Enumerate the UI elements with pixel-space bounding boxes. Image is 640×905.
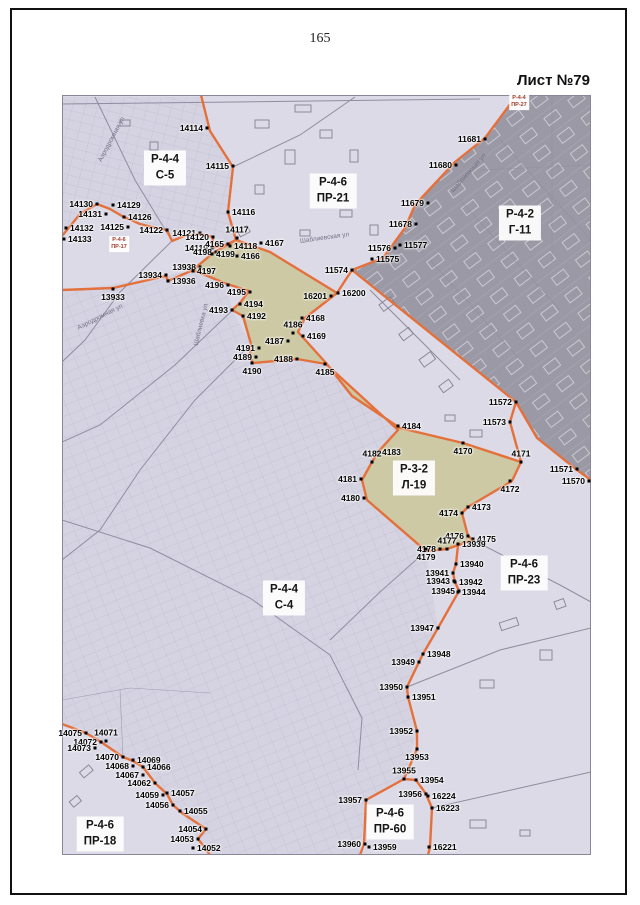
boundary-point-marker: [360, 478, 363, 481]
boundary-point-marker: [427, 202, 430, 205]
boundary-point-marker: [452, 572, 455, 575]
boundary-point-marker: [242, 315, 245, 318]
boundary-point-label: 16201: [303, 292, 327, 301]
boundary-point-marker: [211, 253, 214, 256]
boundary-point-label: 4188: [274, 355, 293, 364]
boundary-point-marker: [251, 362, 254, 365]
boundary-point-label: 4172: [501, 485, 520, 494]
boundary-point-marker: [455, 164, 458, 167]
boundary-point-label: 13944: [462, 588, 486, 597]
zone-label: Р-3-2Л-19: [393, 460, 435, 495]
boundary-point-marker: [100, 741, 103, 744]
boundary-point-marker: [324, 363, 327, 366]
zone-name: ПР-21: [317, 191, 350, 207]
boundary-point-marker: [85, 732, 88, 735]
boundary-point-label: 13945: [431, 587, 455, 596]
boundary-point-marker: [296, 358, 299, 361]
zone-label: Р-4-6ПР-18: [77, 816, 124, 851]
boundary-point-label: 4167: [265, 239, 284, 248]
boundary-point-label: 14129: [117, 201, 141, 210]
boundary-point-marker: [65, 227, 68, 230]
zone-name: ПР-27: [511, 102, 527, 109]
boundary-point-marker: [112, 204, 115, 207]
boundary-point-label: 14133: [68, 235, 92, 244]
zone-label: Р-4-4С-4: [263, 580, 305, 615]
boundary-point-label: 11571: [550, 465, 573, 474]
boundary-point-marker: [232, 165, 235, 168]
boundary-point-label: 13956: [398, 790, 422, 799]
boundary-point-label: 13943: [426, 577, 450, 586]
boundary-point-label: 11572: [489, 398, 512, 407]
boundary-point-marker: [192, 270, 195, 273]
boundary-point-label: 4173: [472, 503, 491, 512]
boundary-point-marker: [461, 512, 464, 515]
zone-code: Р-4-6: [84, 818, 117, 834]
boundary-point-marker: [105, 213, 108, 216]
sheet-label: Лист №79: [517, 72, 590, 89]
boundary-point-label: 4168: [306, 314, 325, 323]
boundary-point-marker: [105, 740, 108, 743]
boundary-point-marker: [172, 804, 175, 807]
boundary-point-marker: [302, 335, 305, 338]
boundary-point-marker: [260, 242, 263, 245]
zone-code: Р-4-6: [317, 175, 350, 191]
boundary-point-label: 14115: [206, 162, 229, 171]
boundary-point-marker: [365, 799, 368, 802]
boundary-point-marker: [455, 563, 458, 566]
boundary-point-label: 4181: [338, 475, 357, 484]
boundary-point-label: 14055: [184, 807, 208, 816]
boundary-point-label: 14066: [147, 763, 171, 772]
boundary-point-marker: [397, 425, 400, 428]
zone-label: Р-4-2Г-11: [499, 205, 541, 240]
boundary-point-marker: [368, 846, 371, 849]
boundary-point-label: 13959: [373, 843, 397, 852]
boundary-point-marker: [462, 442, 465, 445]
boundary-point-marker: [364, 843, 367, 846]
boundary-point-marker: [229, 245, 232, 248]
boundary-point-label: 14071: [94, 729, 118, 738]
boundary-point-label: 14118: [234, 242, 257, 251]
zone-name: ПР-18: [84, 834, 117, 850]
boundary-point-label: 13947: [410, 624, 434, 633]
boundary-point-marker: [165, 274, 168, 277]
boundary-point-label: 14059: [135, 791, 159, 800]
boundary-point-label: 4198: [193, 248, 212, 257]
boundary-point-marker: [167, 280, 170, 283]
boundary-point-marker: [371, 461, 374, 464]
boundary-point-label: 13957: [338, 796, 362, 805]
boundary-point-marker: [437, 627, 440, 630]
boundary-point-marker: [457, 543, 460, 546]
map: Аэродромная улАэродромная улШаблиевская …: [62, 95, 591, 855]
boundary-point-label: 4192: [247, 312, 266, 321]
boundary-point-marker: [166, 792, 169, 795]
boundary-point-label: 11678: [389, 220, 412, 229]
boundary-point-label: 4185: [316, 368, 335, 377]
zone-code: Р-4-4: [511, 95, 527, 102]
boundary-point-marker: [484, 138, 487, 141]
boundary-point-marker: [415, 779, 418, 782]
boundary-point-marker: [292, 332, 295, 335]
boundary-point-label: 11575: [376, 255, 399, 264]
boundary-point-label: 4199: [216, 250, 235, 259]
boundary-point-marker: [132, 765, 135, 768]
boundary-point-marker: [142, 766, 145, 769]
boundary-point-label: 4177: [438, 537, 457, 546]
zone-label: Р-4-6ПР-60: [367, 804, 414, 839]
document-page: { "page": { "number": "165", "sheet_labe…: [0, 0, 640, 905]
zone-code: Р-4-6: [508, 557, 541, 573]
boundary-point-marker: [371, 258, 374, 261]
boundary-point-marker: [509, 421, 512, 424]
boundary-point-marker: [418, 661, 421, 664]
boundary-point-label: 4189: [233, 353, 252, 362]
zone-code: Р-3-2: [400, 462, 428, 478]
boundary-point-label: 13950: [379, 683, 403, 692]
boundary-point-label: 4183: [382, 448, 401, 457]
boundary-point-label: 4187: [265, 337, 284, 346]
boundary-point-label: 14056: [145, 801, 169, 810]
zone-code: Р-4-2: [506, 207, 534, 223]
boundary-point-label: 16221: [433, 843, 457, 852]
boundary-point-label: 13942: [459, 578, 483, 587]
boundary-point-label: 13948: [427, 650, 451, 659]
boundary-point-marker: [406, 686, 409, 689]
boundary-point-marker: [576, 468, 579, 471]
boundary-point-label: 14053: [170, 835, 194, 844]
boundary-point-marker: [227, 211, 230, 214]
boundary-point-marker: [416, 730, 419, 733]
boundary-point-label: 4169: [307, 332, 326, 341]
zone-label: Р-4-4С-5: [144, 150, 186, 185]
boundary-point-label: 11680: [429, 161, 452, 170]
boundary-point-label: 4180: [341, 494, 360, 503]
boundary-point-marker: [427, 795, 430, 798]
boundary-point-marker: [236, 255, 239, 258]
boundary-point-label: 13949: [391, 658, 415, 667]
boundary-point-marker: [206, 127, 209, 130]
boundary-point-label: 11679: [401, 199, 424, 208]
boundary-point-label: 14054: [178, 825, 202, 834]
boundary-point-marker: [154, 782, 157, 785]
boundary-point-marker: [205, 828, 208, 831]
boundary-point-label: 4196: [205, 281, 224, 290]
boundary-point-marker: [162, 794, 165, 797]
boundary-point-label: 13955: [392, 767, 416, 776]
boundary-point-marker: [363, 497, 366, 500]
boundary-point-label: 4194: [244, 300, 263, 309]
boundary-point-label: 13953: [405, 753, 429, 762]
boundary-point-marker: [509, 480, 512, 483]
boundary-point-label: 16200: [342, 289, 366, 298]
boundary-point-marker: [239, 303, 242, 306]
mini-zone-label: Р-4-6ПР-17: [109, 236, 129, 252]
zone-name: С-4: [270, 598, 298, 614]
boundary-point-label: 4184: [402, 422, 421, 431]
boundary-point-label: 13934: [138, 271, 162, 280]
boundary-point-marker: [515, 401, 518, 404]
boundary-point-label: 11573: [483, 418, 506, 427]
boundary-point-label: 13933: [101, 293, 125, 302]
boundary-point-marker: [166, 229, 169, 232]
zone-code: Р-4-4: [151, 152, 179, 168]
boundary-point-marker: [287, 340, 290, 343]
zone-name: ПР-60: [374, 822, 407, 838]
boundary-point-marker: [258, 347, 261, 350]
boundary-point-label: 14132: [70, 224, 94, 233]
boundary-point-label: 14131: [78, 210, 102, 219]
boundary-point-marker: [330, 295, 333, 298]
zone-name: ПР-23: [508, 573, 541, 589]
boundary-point-label: 11576: [368, 244, 391, 253]
boundary-point-marker: [142, 774, 145, 777]
boundary-point-marker: [337, 292, 340, 295]
boundary-point-label: 13940: [460, 560, 484, 569]
boundary-point-label: 4170: [454, 447, 473, 456]
boundary-point-label: 4190: [243, 367, 262, 376]
boundary-point-label: 11577: [404, 241, 427, 250]
boundary-point-marker: [96, 203, 99, 206]
zone-code: Р-4-4: [270, 582, 298, 598]
boundary-point-marker: [446, 548, 449, 551]
boundary-point-marker: [520, 461, 523, 464]
boundary-point-marker: [192, 847, 195, 850]
boundary-point-label: 11570: [562, 477, 585, 486]
boundary-point-marker: [231, 309, 234, 312]
boundary-point-marker: [127, 226, 130, 229]
boundary-point-label: 4195: [227, 288, 246, 297]
boundary-point-label: 14130: [69, 200, 93, 209]
zone-name: ПР-17: [111, 244, 127, 251]
boundary-point-marker: [132, 759, 135, 762]
boundary-point-label: 14114: [180, 124, 203, 133]
boundary-point-marker: [422, 653, 425, 656]
boundary-point-marker: [415, 223, 418, 226]
boundary-point-marker: [457, 591, 460, 594]
boundary-point-marker: [255, 356, 258, 359]
boundary-point-label: 14062: [127, 779, 151, 788]
zone-code: Р-4-6: [374, 806, 407, 822]
boundary-point-marker: [394, 247, 397, 250]
zone-name: Г-11: [506, 223, 534, 239]
boundary-point-marker: [431, 807, 434, 810]
zone-code: Р-4-6: [111, 237, 127, 244]
boundary-point-label: 13954: [420, 776, 444, 785]
boundary-point-label: 4186: [284, 321, 303, 330]
boundary-point-label: 14116: [232, 208, 255, 217]
boundary-point-marker: [407, 696, 410, 699]
boundary-point-label: 4197: [197, 267, 216, 276]
boundary-point-marker: [403, 778, 406, 781]
boundary-point-label: 16223: [436, 804, 460, 813]
boundary-point-marker: [236, 237, 239, 240]
boundary-point-marker: [351, 269, 354, 272]
boundary-point-label: 13960: [337, 840, 361, 849]
boundary-point-marker: [249, 291, 252, 294]
boundary-point-marker: [123, 216, 126, 219]
boundary-point-marker: [439, 548, 442, 551]
boundary-point-marker: [112, 288, 115, 291]
boundary-point-marker: [416, 748, 419, 751]
boundary-point-label: 4182: [363, 450, 382, 459]
boundary-point-marker: [197, 838, 200, 841]
boundary-point-label: 14125: [100, 223, 124, 232]
boundary-point-label: 14057: [171, 789, 195, 798]
boundary-point-label: 11574: [325, 266, 348, 275]
boundary-point-marker: [63, 238, 66, 241]
boundary-point-marker: [467, 506, 470, 509]
mini-zone-label: Р-4-4ПР-27: [509, 94, 529, 110]
boundary-point-label: 11681: [458, 135, 481, 144]
boundary-point-marker: [122, 756, 125, 759]
boundary-point-label: 13936: [172, 277, 196, 286]
boundary-point-label: 14122: [139, 226, 163, 235]
boundary-point-marker: [454, 581, 457, 584]
boundary-point-label: 14052: [197, 844, 221, 853]
boundary-point-label: 4179: [417, 553, 436, 562]
boundary-point-marker: [467, 535, 470, 538]
boundary-point-label: 13951: [412, 693, 436, 702]
boundary-point-label: 14073: [67, 744, 91, 753]
boundary-point-label: 4193: [209, 306, 228, 315]
boundary-point-label: 13939: [462, 540, 486, 549]
boundary-point-marker: [179, 810, 182, 813]
boundary-point-label: 13952: [389, 727, 413, 736]
zone-name: Л-19: [400, 478, 428, 494]
boundary-point-label: 4174: [439, 509, 458, 518]
page-number: 165: [0, 31, 640, 47]
zone-name: С-5: [151, 168, 179, 184]
boundary-point-marker: [428, 846, 431, 849]
boundary-point-label: 4171: [512, 450, 531, 459]
boundary-point-label: 4166: [241, 252, 260, 261]
boundary-point-label: 14117: [225, 226, 248, 235]
boundary-point-marker: [399, 244, 402, 247]
zone-label: Р-4-6ПР-21: [310, 173, 357, 208]
boundary-point-marker: [94, 747, 97, 750]
zone-label: Р-4-6ПР-23: [501, 555, 548, 590]
boundary-point-label: 14126: [128, 213, 152, 222]
boundary-point-label: 16224: [432, 792, 456, 801]
boundary-point-marker: [588, 480, 591, 483]
boundary-point-marker: [425, 548, 428, 551]
